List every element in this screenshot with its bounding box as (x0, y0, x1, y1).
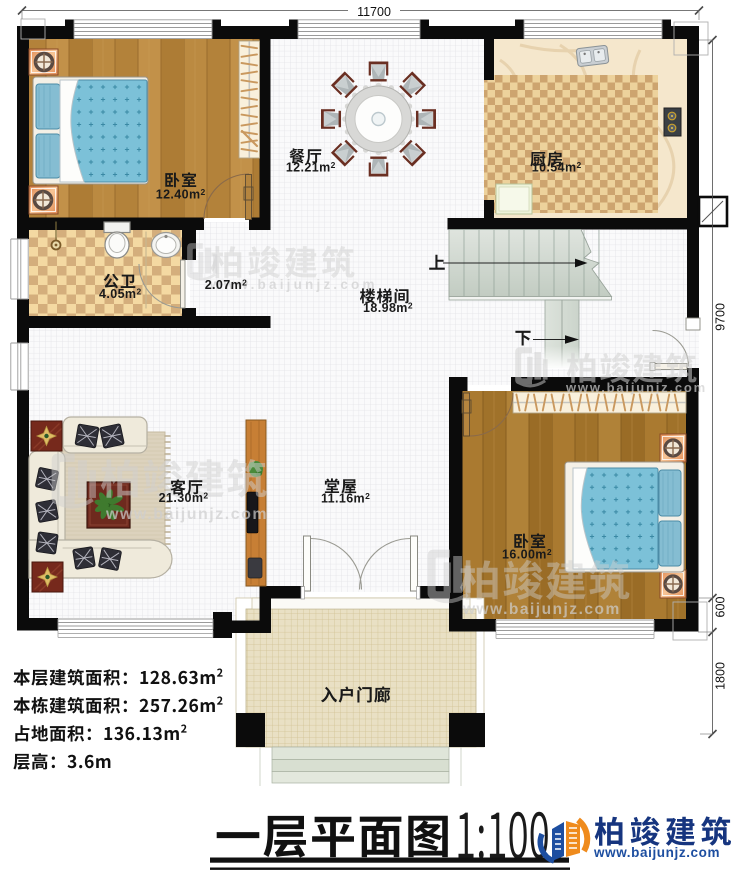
svg-text:21.30m2: 21.30m2 (159, 491, 209, 506)
svg-text:1800: 1800 (714, 662, 728, 690)
svg-text:600: 600 (714, 597, 728, 618)
svg-text:10.54m2: 10.54m2 (532, 160, 582, 175)
svg-text:www.baijunjz.com: www.baijunjz.com (462, 601, 621, 618)
svg-text:16.00m2: 16.00m2 (502, 547, 552, 562)
svg-text:www.baijunjz.com: www.baijunjz.com (105, 506, 268, 523)
svg-text:www.baijunjz.com: www.baijunjz.com (593, 845, 720, 860)
svg-text:11.16m2: 11.16m2 (321, 491, 370, 506)
svg-text:www.baijunjz.com: www.baijunjz.com (565, 380, 707, 395)
svg-text:12.40m2: 12.40m2 (156, 187, 206, 202)
svg-text:4.05m2: 4.05m2 (99, 287, 142, 302)
svg-text:2.07m2: 2.07m2 (205, 278, 248, 293)
svg-text:12.21m2: 12.21m2 (286, 160, 336, 175)
svg-text:18.98m2: 18.98m2 (363, 301, 413, 316)
svg-text:9700: 9700 (714, 303, 728, 331)
svg-text:11700: 11700 (357, 5, 391, 19)
